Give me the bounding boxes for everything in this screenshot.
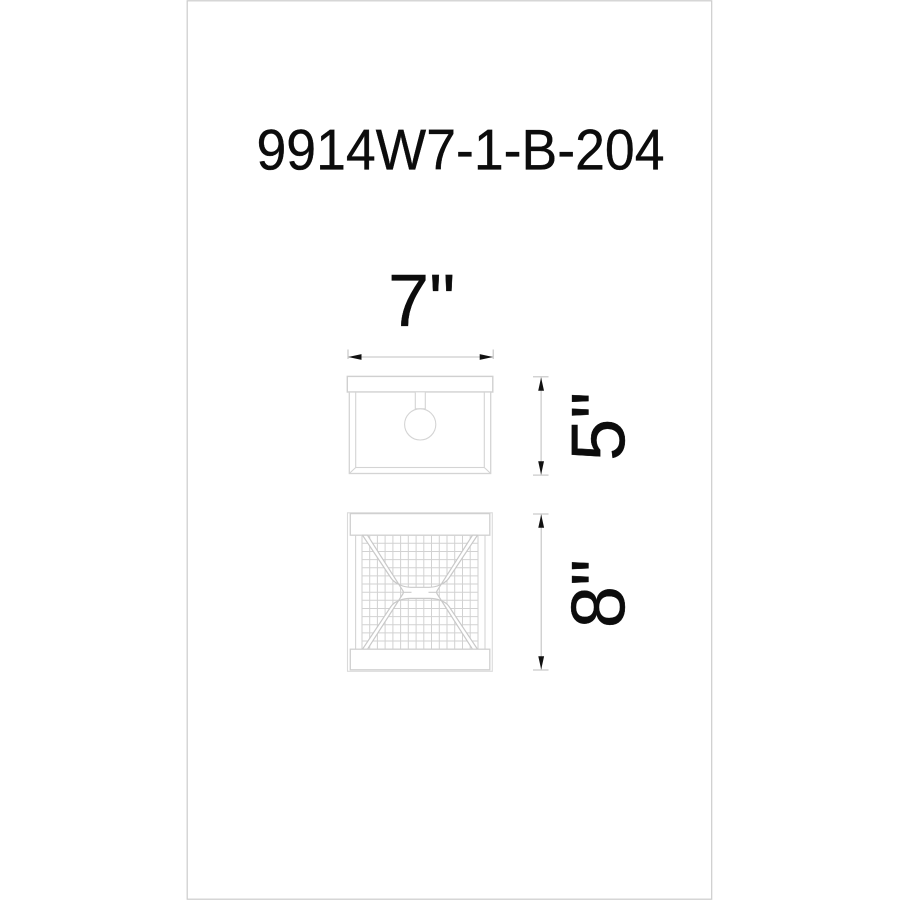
svg-text:8": 8" xyxy=(557,559,642,628)
svg-text:5": 5" xyxy=(557,392,642,461)
svg-text:9914W7-1-B-204: 9914W7-1-B-204 xyxy=(257,118,665,182)
svg-text:7": 7" xyxy=(388,259,455,342)
